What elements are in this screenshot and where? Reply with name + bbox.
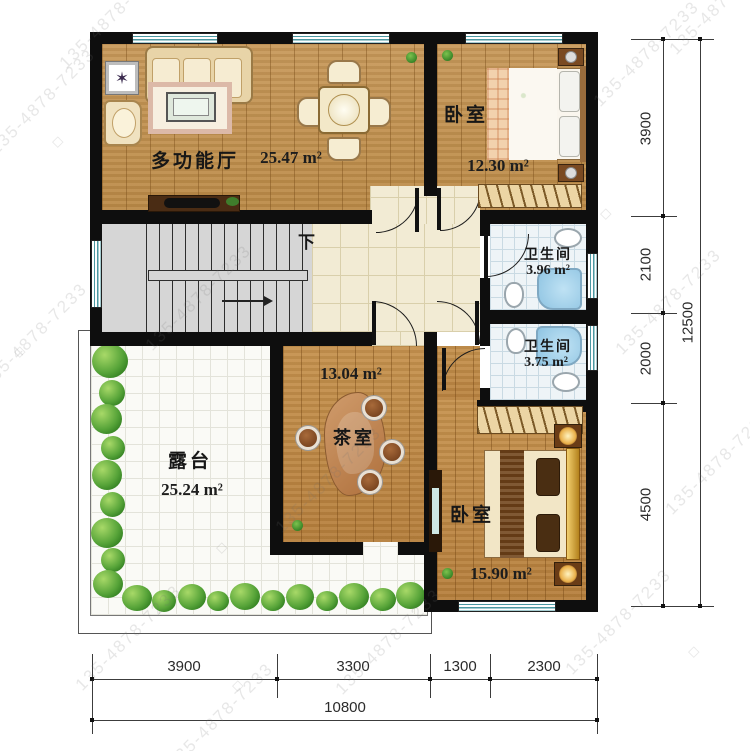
window-bottom-bedroom: [458, 601, 556, 612]
dim-node: [90, 677, 94, 681]
dim-bottom-1: 3900: [139, 658, 229, 675]
watermark-text: 135-4878-7233: [612, 245, 726, 359]
floor-plan-canvas: 下 ✶: [0, 0, 750, 751]
potted-plant: [442, 50, 453, 61]
window-right-bath1: [587, 253, 598, 299]
bath-bottom-area: 3.75 m²: [516, 355, 576, 371]
dim-node: [698, 37, 702, 41]
dim-node: [698, 604, 702, 608]
dim-bottom-3: 1300: [415, 658, 505, 675]
wall-hall-bottom: [90, 210, 372, 224]
dining-chair-right: [367, 97, 391, 127]
bedroom-bottom-area: 15.90 m²: [456, 564, 546, 584]
dim-node: [661, 214, 665, 218]
dining-chair-top: [327, 60, 361, 84]
window-top-1: [132, 33, 218, 44]
dim-ext-line: [92, 688, 93, 734]
stair-direction-arrowhead: [264, 296, 273, 306]
plant-bush: [207, 591, 229, 611]
bed-bottom-headboard: [566, 448, 580, 560]
dim-line-bottom-segments: [92, 679, 598, 680]
hall-area: 25.47 m²: [250, 148, 332, 168]
wall-tearoom-right: [424, 346, 437, 412]
turtle-decor: [226, 197, 239, 206]
dim-ext-line: [668, 39, 714, 40]
dim-node: [595, 677, 599, 681]
wall-mid-stub: [424, 332, 437, 346]
bath-top-name: 卫生间: [514, 244, 582, 264]
watermark-text: 135-4878-7233: [0, 45, 100, 159]
potted-plant: [442, 568, 453, 579]
dim-node: [275, 677, 279, 681]
bed-top-headboard: [580, 66, 586, 162]
tv-bedroom-bottom-screen: [432, 488, 439, 534]
dim-ext-line: [631, 216, 677, 217]
terrace-area: 25.24 m²: [148, 480, 236, 500]
wall-lobby-stub: [424, 186, 437, 196]
hall-name: 多功能厅: [145, 146, 245, 173]
plant-bush: [91, 404, 122, 434]
door-leaf-tearoom: [372, 301, 376, 345]
dim-ext-line: [631, 313, 677, 314]
watermark-text: 135-4878-7233: [666, 0, 750, 59]
watermark-diamond: ◇: [52, 132, 64, 150]
window-left-stairs: [91, 240, 102, 308]
tea-stool: [296, 426, 320, 450]
bedroom-top-area: 12.30 m²: [458, 156, 538, 176]
plant-bush: [152, 590, 176, 612]
plant-bush: [92, 344, 128, 378]
dim-ext-line: [597, 688, 598, 734]
toilet-bath-top: [504, 282, 524, 308]
plant-bush: [286, 584, 314, 610]
plant-bush: [91, 518, 123, 548]
tea-stool: [362, 396, 386, 420]
dim-line-right-segments: [663, 39, 664, 606]
bed-bottom-pillow-1: [536, 458, 560, 496]
plant-bush: [261, 590, 285, 611]
tv-set: [164, 198, 220, 208]
tearoom-area: 13.04 m²: [306, 364, 396, 384]
window-right-bath2: [587, 325, 598, 371]
plant-bush: [230, 583, 260, 610]
bed-top-pillow-1: [559, 71, 580, 112]
dim-right-4: 4500: [638, 470, 655, 540]
door-leaf-bedroom-top: [437, 188, 441, 230]
lamp-glow: [559, 427, 577, 445]
stair-rail: [148, 270, 308, 281]
dining-chair-bottom: [327, 137, 361, 161]
plant-bush: [93, 570, 123, 598]
wall-tearoom-left: [270, 346, 283, 555]
armchair-cushion: [112, 108, 136, 138]
door-leaf-corridor: [475, 301, 479, 345]
dim-node: [661, 37, 665, 41]
plant-bush: [370, 588, 396, 611]
plant-bush: [339, 583, 369, 610]
sink-bath-bottom: [552, 372, 580, 392]
nightstand-knob: [565, 51, 577, 63]
window-top-3: [465, 33, 563, 44]
dim-node: [595, 718, 599, 722]
dim-right-1: 3900: [638, 94, 655, 164]
watermark-diamond: ◇: [600, 204, 612, 222]
lamp-glow: [559, 565, 577, 583]
wall-mid-band: [90, 332, 372, 346]
bedroom-bottom-name: 卧室: [442, 500, 502, 527]
plant-bush: [101, 436, 125, 460]
door-leaf-bath-bottom: [442, 348, 446, 390]
dim-line-bottom-total: [92, 720, 598, 721]
stair-down-label: 下: [296, 228, 320, 253]
wall-tearoom-bottom-right: [398, 542, 424, 555]
plant-bush: [100, 492, 125, 517]
stair-direction-line: [222, 300, 266, 302]
plant-bush: [92, 460, 122, 490]
coffee-table-glass: [173, 98, 209, 116]
nightstand-knob: [565, 167, 577, 179]
plant-bush: [178, 584, 206, 610]
dim-node: [661, 401, 665, 405]
dim-node: [428, 677, 432, 681]
plant-bush: [316, 591, 338, 611]
bath-top-area: 3.96 m²: [518, 263, 578, 279]
window-top-2: [292, 33, 390, 44]
door-leaf-hall: [415, 188, 419, 232]
wall-bath2-left-upper: [480, 324, 490, 346]
watermark-text: 135-4878-7233: [662, 405, 750, 519]
wall-art-frame: ✶: [106, 62, 138, 94]
plant-bush: [101, 548, 125, 572]
dim-right-2: 2100: [638, 230, 655, 300]
dim-ext-line: [631, 403, 677, 404]
bath-bottom-name: 卫生间: [514, 336, 582, 356]
bed-top-duvet: [509, 68, 557, 160]
dim-bottom-2: 3300: [308, 658, 398, 675]
wall-bedroom-top-bottom: [480, 210, 598, 224]
potted-plant: [406, 52, 417, 63]
plant-bush: [396, 582, 425, 609]
dim-node: [488, 677, 492, 681]
dim-node: [661, 311, 665, 315]
bedroom-top-name: 卧室: [436, 100, 496, 127]
plant-bush: [122, 585, 152, 611]
wall-tearoom-bottom-left: [270, 542, 363, 555]
dim-node: [90, 718, 94, 722]
dining-table-center: [328, 94, 360, 126]
dim-ext-line: [277, 654, 278, 698]
watermark-diamond: ◇: [688, 642, 700, 660]
door-leaf-bath-top: [484, 234, 488, 278]
bed-bottom-runner: [500, 450, 524, 558]
dim-right-total: 12500: [680, 283, 697, 363]
bed-bottom-pillow-2: [536, 514, 560, 552]
dim-bottom-4: 2300: [499, 658, 589, 675]
bed-top-pillow-2: [559, 116, 580, 157]
tearoom-name: 茶室: [322, 424, 386, 450]
dim-line-right-total: [700, 39, 701, 606]
plant-bush: [99, 380, 125, 406]
dim-ext-line: [668, 606, 714, 607]
terrace-name: 露台: [152, 446, 228, 473]
dim-right-3: 2000: [638, 324, 655, 394]
potted-plant: [292, 520, 303, 531]
dim-node: [661, 604, 665, 608]
watermark-diamond: ◇: [14, 342, 26, 360]
tea-stool: [358, 470, 382, 494]
wall-bath-divider: [480, 310, 598, 324]
wardrobe-bedroom-top: [478, 184, 582, 208]
dim-bottom-total: 10800: [300, 699, 390, 716]
wall-bath-left-lower: [480, 278, 490, 310]
